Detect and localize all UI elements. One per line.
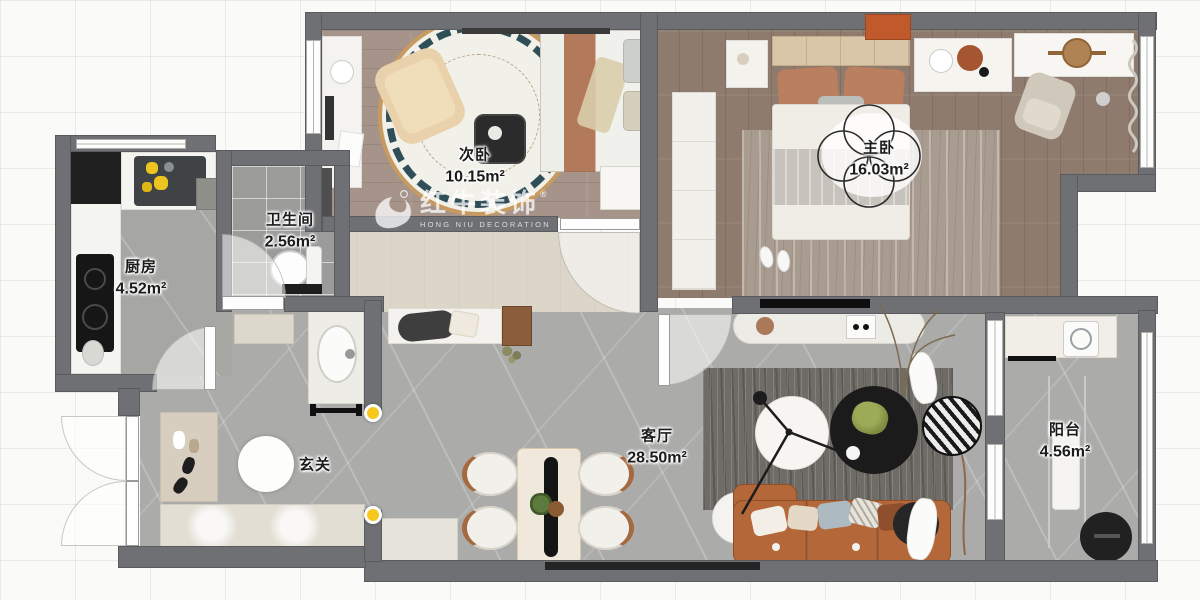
- registered-mark: ®: [540, 189, 551, 199]
- room-label-second-bedroom: 次卧 10.15m²: [445, 144, 505, 187]
- room-label-bathroom: 卫生间 2.56m²: [265, 209, 316, 252]
- twig-plant: [962, 455, 965, 555]
- room-name: 客厅: [627, 425, 687, 446]
- watermark-text: 红牛装饰® HONG NIU DECORATION: [420, 190, 551, 229]
- marker-dot-lower: [364, 506, 382, 524]
- room-label-balcony: 阳台 4.56m²: [1040, 419, 1091, 462]
- room-name: 阳台: [1040, 419, 1091, 440]
- floor-lamp-head: [753, 391, 767, 405]
- floor-plan: 次卧 10.15m² 主卧 16.03m² 卫生间 2.56m² 厨房 4.52…: [0, 0, 1200, 600]
- watermark-subtitle: HONG NIU DECORATION: [420, 220, 551, 229]
- watermark-brand: 红牛装饰®: [420, 190, 551, 216]
- marker-dot-upper: [364, 404, 382, 422]
- room-label-living-room: 客厅 28.50m²: [627, 425, 687, 468]
- room-area: 16.03m²: [849, 162, 909, 180]
- curtain-squiggle: [1130, 40, 1137, 152]
- room-area: 2.56m²: [265, 234, 316, 252]
- room-area: 4.56m²: [1040, 444, 1091, 462]
- room-name: 次卧: [445, 144, 505, 165]
- floor-lamp-icon: [742, 398, 846, 514]
- floor-lamp-joint: [786, 429, 793, 436]
- room-area: 10.15m²: [445, 169, 505, 187]
- hongniu-bull-logo-icon: [366, 186, 412, 232]
- room-label-kitchen: 厨房 4.52m²: [116, 256, 167, 299]
- room-name: 玄关: [299, 454, 331, 475]
- brand-name: 红牛装饰: [420, 188, 540, 218]
- room-label-entry: 玄关: [299, 454, 331, 475]
- room-area: 28.50m²: [627, 450, 687, 468]
- room-name: 厨房: [116, 256, 167, 277]
- room-name: 卫生间: [265, 209, 316, 230]
- room-label-master-bedroom: 主卧 16.03m²: [849, 137, 909, 180]
- watermark: 红牛装饰® HONG NIU DECORATION: [366, 186, 551, 232]
- room-area: 4.52m²: [116, 281, 167, 299]
- branch-decor: [880, 305, 955, 395]
- decor-overlay: [0, 0, 1200, 600]
- room-name: 主卧: [849, 137, 909, 158]
